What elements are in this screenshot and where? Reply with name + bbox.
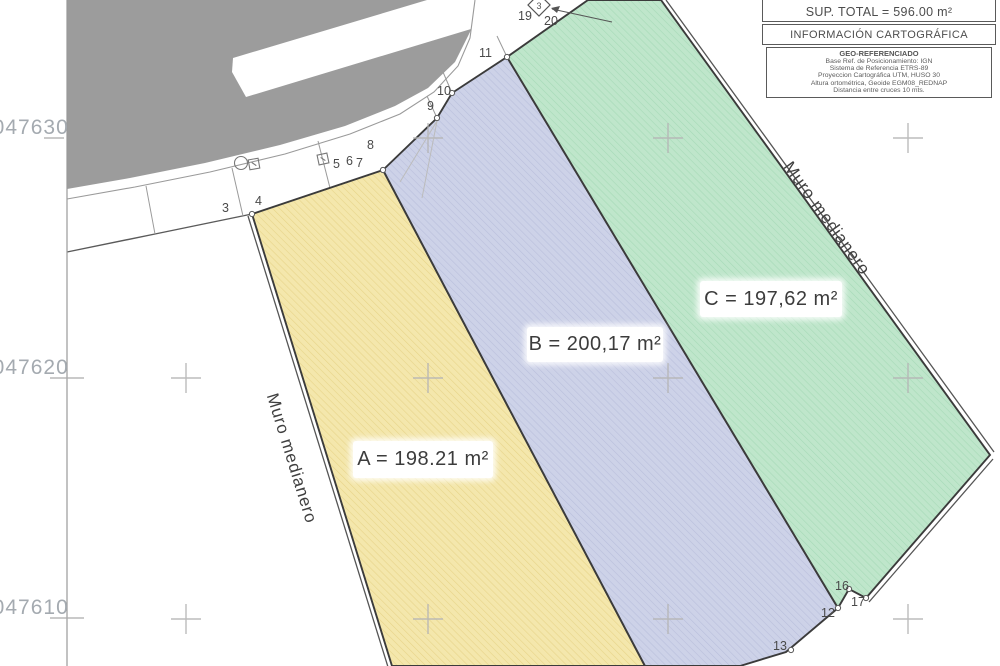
utm-northing-label: 4047630 bbox=[0, 117, 64, 139]
point-label-13: 13 bbox=[773, 639, 787, 653]
survey-point-marker bbox=[380, 167, 385, 172]
utility-symbols bbox=[235, 153, 329, 170]
parcel-a-area-label: A = 198.21 m² bbox=[353, 441, 493, 478]
grid-cross bbox=[171, 604, 201, 634]
geo-line: Altura ortométrica, Geoide EGM08_REDNAP bbox=[767, 80, 991, 87]
station-number: 3 bbox=[536, 1, 541, 11]
grid-cross bbox=[893, 123, 923, 153]
survey-point-marker bbox=[249, 211, 254, 216]
utm-northing-label: 4047610 bbox=[0, 597, 64, 619]
point-label-12: 12 bbox=[821, 606, 835, 620]
point-label-9: 9 bbox=[427, 99, 434, 113]
survey-point-marker bbox=[788, 647, 793, 652]
point-label-20: 20 bbox=[544, 14, 558, 28]
parcel-b-area-label: B = 200,17 m² bbox=[527, 327, 663, 362]
geo-referenced-title: GEO-REFERENCIADO bbox=[767, 50, 991, 58]
survey-point-marker bbox=[835, 605, 840, 610]
grid-cross bbox=[893, 604, 923, 634]
survey-point-marker bbox=[504, 54, 509, 59]
utm-northing-label: 4047620 bbox=[0, 357, 64, 379]
point-label-16: 16 bbox=[835, 579, 849, 593]
point-label-6: 6 bbox=[346, 154, 353, 168]
geo-line: Base Ref. de Posicionamiento: IGN bbox=[767, 58, 991, 65]
utility-box-icon bbox=[248, 158, 260, 170]
point-label-8: 8 bbox=[367, 138, 374, 152]
point-label-17: 17 bbox=[851, 595, 865, 609]
utility-box-icon bbox=[317, 153, 329, 165]
point-label-3: 3 bbox=[222, 201, 229, 215]
point-label-11: 11 bbox=[479, 46, 492, 60]
total-surface-row: SUP. TOTAL = 596.00 m² bbox=[762, 0, 996, 22]
site-plan-canvas: 3 3 4 5 6 7 8 9 10 11 19 bbox=[0, 0, 1000, 666]
geo-line: Proyeccion Cartográfica UTM, HUSO 30 bbox=[767, 72, 991, 79]
cadastral-plan-page: 3 3 4 5 6 7 8 9 10 11 19 bbox=[0, 0, 1000, 666]
cartographic-info-box: SUP. TOTAL = 596.00 m² INFORMACIÓN CARTO… bbox=[762, 0, 996, 98]
carto-info-title: INFORMACIÓN CARTOGRÁFICA bbox=[762, 24, 996, 45]
parcel-c-area-label: C = 197,62 m² bbox=[700, 281, 842, 317]
geo-line: Distancia entre cruces 10 mts. bbox=[767, 87, 991, 94]
geo-line: Sistema de Referencia ETRS-89 bbox=[767, 65, 991, 72]
survey-point-marker bbox=[434, 115, 439, 120]
geo-reference-block: GEO-REFERENCIADO Base Ref. de Posicionam… bbox=[766, 47, 992, 98]
property-front-line bbox=[67, 214, 252, 252]
point-label-19: 19 bbox=[518, 9, 532, 23]
grid-cross bbox=[171, 363, 201, 393]
point-label-10: 10 bbox=[437, 84, 451, 98]
point-label-5: 5 bbox=[333, 157, 340, 171]
point-label-4: 4 bbox=[255, 194, 262, 208]
point-label-7: 7 bbox=[356, 156, 363, 170]
